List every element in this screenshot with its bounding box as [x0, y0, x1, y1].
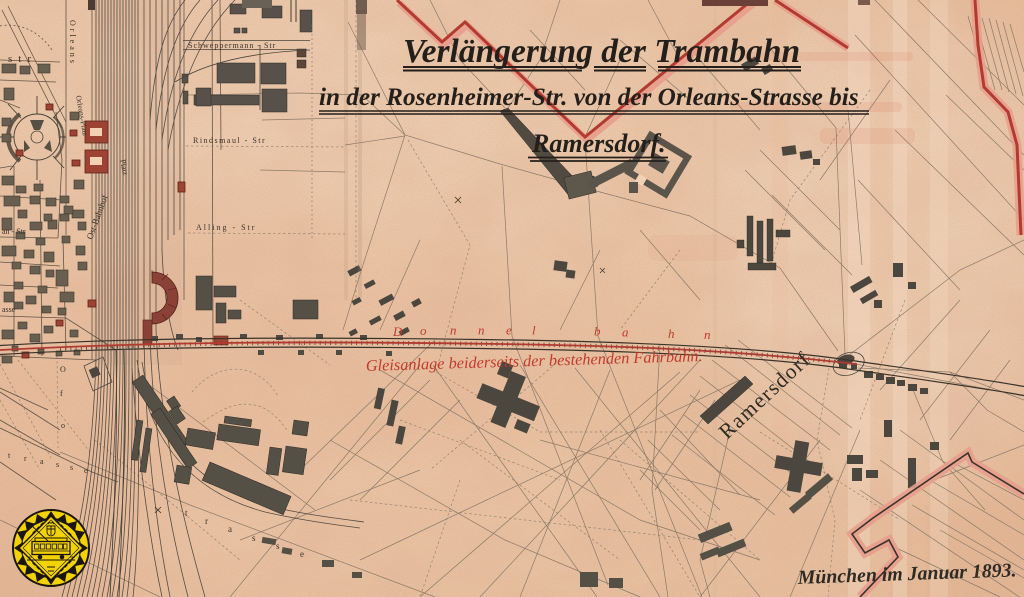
svg-text:in der Rosenheimer-Str. von de: in der Rosenheimer-Str. von der Orleans-…	[319, 84, 859, 111]
svg-text:a: a	[40, 457, 44, 466]
svg-text:f: f	[60, 389, 63, 398]
svg-text:e: e	[506, 323, 512, 338]
svg-text:O: O	[60, 365, 66, 374]
svg-text:b: b	[594, 324, 601, 339]
svg-text:s: s	[56, 460, 59, 469]
svg-text:Alling - Str: Alling - Str	[196, 223, 256, 232]
svg-text:o: o	[420, 323, 427, 338]
svg-text:o: o	[61, 421, 65, 430]
svg-text:n: n	[478, 323, 485, 338]
svg-text:s: s	[276, 541, 280, 551]
svg-text:a: a	[228, 524, 232, 534]
svg-text:Rindsmaul - Str: Rindsmaul - Str	[193, 136, 266, 145]
svg-text:n: n	[450, 323, 457, 338]
svg-text:a: a	[622, 324, 629, 339]
svg-text:D: D	[392, 324, 403, 339]
svg-text:str: str	[8, 53, 37, 65]
svg-text:e: e	[300, 549, 304, 559]
svg-text:Orleans: Orleans	[68, 20, 77, 66]
svg-text:r: r	[24, 454, 27, 463]
svg-text:l: l	[532, 323, 536, 338]
svg-text:s: s	[70, 463, 73, 472]
svg-text:s: s	[252, 533, 256, 543]
svg-text:an - Str: an - Str	[2, 227, 26, 236]
svg-text:e: e	[84, 466, 88, 475]
svg-text:Ramersdorf.: Ramersdorf.	[531, 129, 666, 158]
svg-text:asse: asse	[2, 305, 16, 314]
svg-text:r: r	[205, 516, 208, 526]
svg-text:Verlängerung der Trambahn: Verlängerung der Trambahn	[403, 33, 800, 70]
svg-text:n: n	[704, 327, 711, 342]
svg-text:h: h	[668, 326, 675, 341]
svg-text:Schweppermann - Str: Schweppermann - Str	[188, 41, 276, 50]
